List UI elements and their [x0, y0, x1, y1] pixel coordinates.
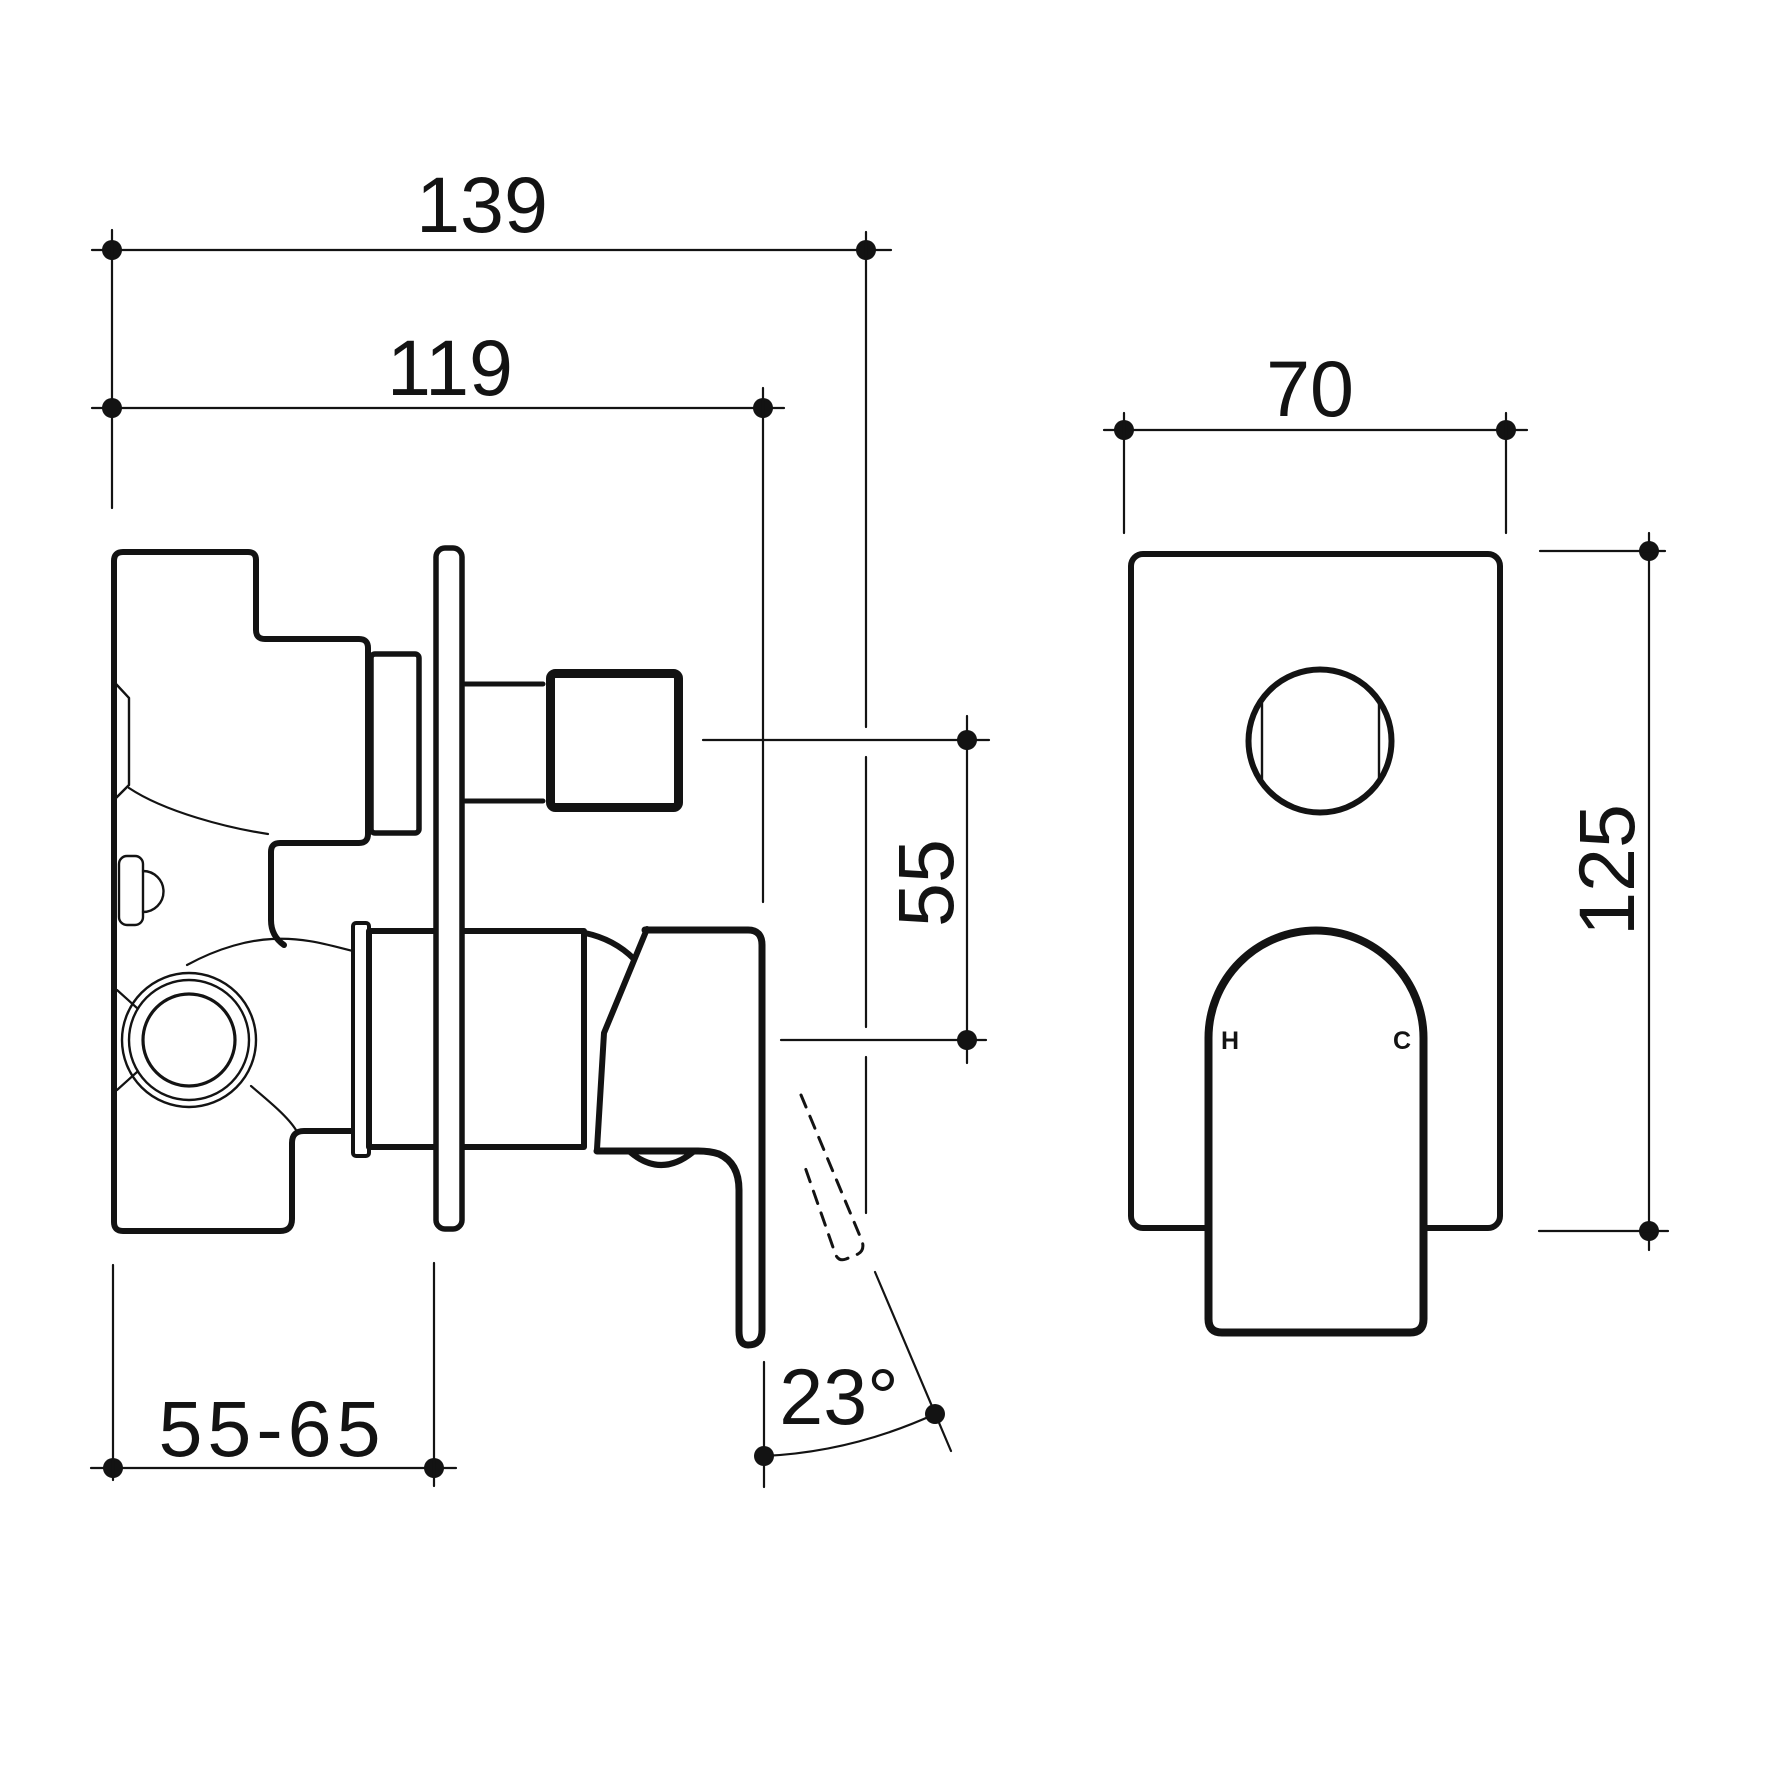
svg-text:55: 55: [881, 839, 970, 927]
svg-text:23°: 23°: [779, 1352, 898, 1441]
svg-text:139: 139: [416, 160, 548, 249]
svg-text:H: H: [1221, 1027, 1239, 1055]
svg-text:119: 119: [387, 323, 513, 412]
svg-text:125: 125: [1562, 804, 1651, 936]
svg-text:70: 70: [1266, 344, 1354, 433]
svg-text:55-65: 55-65: [158, 1384, 385, 1473]
svg-text:C: C: [1393, 1027, 1411, 1055]
